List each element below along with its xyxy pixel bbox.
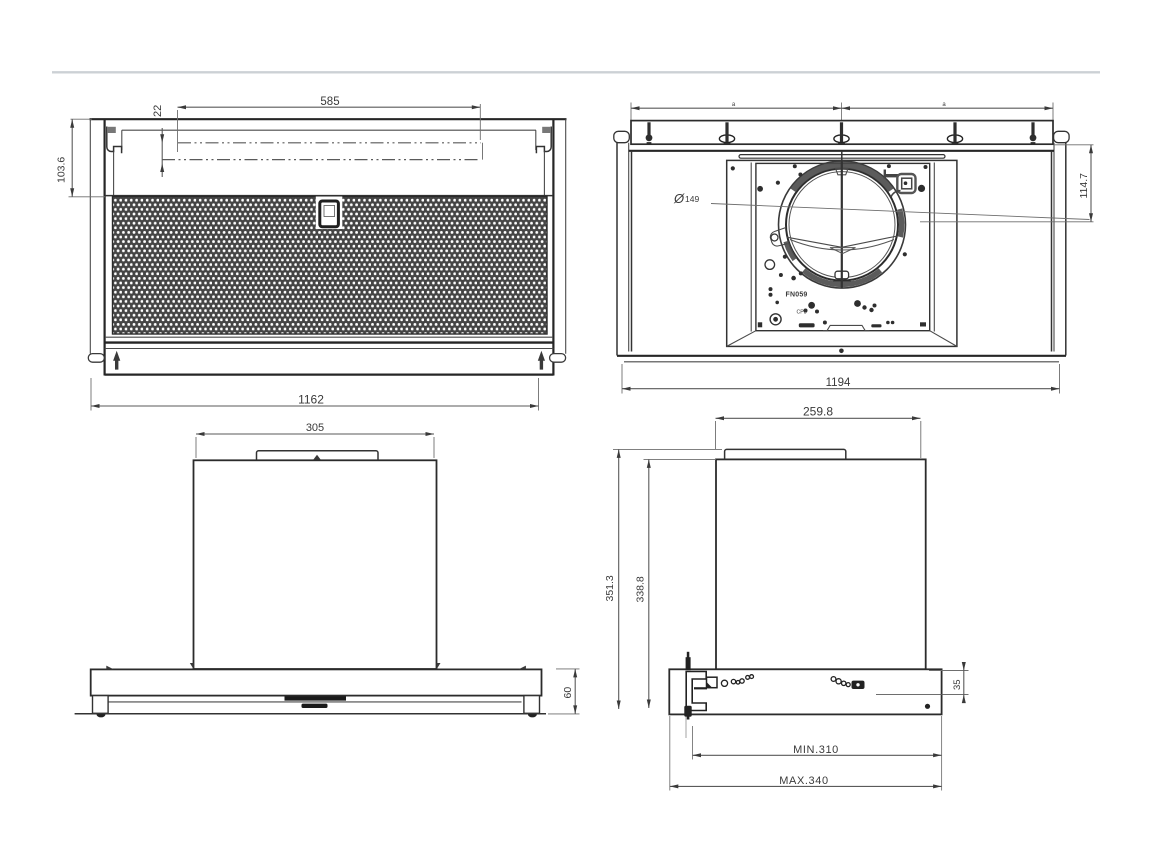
svg-text:1194: 1194 [826,377,851,389]
svg-text:585: 585 [320,96,339,108]
svg-text:259.8: 259.8 [803,405,833,419]
svg-text:22: 22 [152,105,164,117]
svg-text:351.3: 351.3 [604,575,616,601]
svg-text:MAX.340: MAX.340 [779,775,828,787]
svg-text:338.8: 338.8 [635,576,647,602]
svg-text:Ø: Ø [673,191,685,206]
svg-text:149: 149 [685,194,699,204]
svg-text:103.6: 103.6 [56,157,68,183]
svg-text:35: 35 [952,679,963,690]
svg-text:60: 60 [562,687,574,699]
svg-text:1162: 1162 [298,393,324,407]
svg-text:MIN.310: MIN.310 [793,744,839,756]
svg-text:114.7: 114.7 [1078,173,1090,199]
svg-text:305: 305 [306,422,324,434]
svg-text:FN059: FN059 [786,292,808,299]
svg-text:CP3: CP3 [797,310,807,316]
